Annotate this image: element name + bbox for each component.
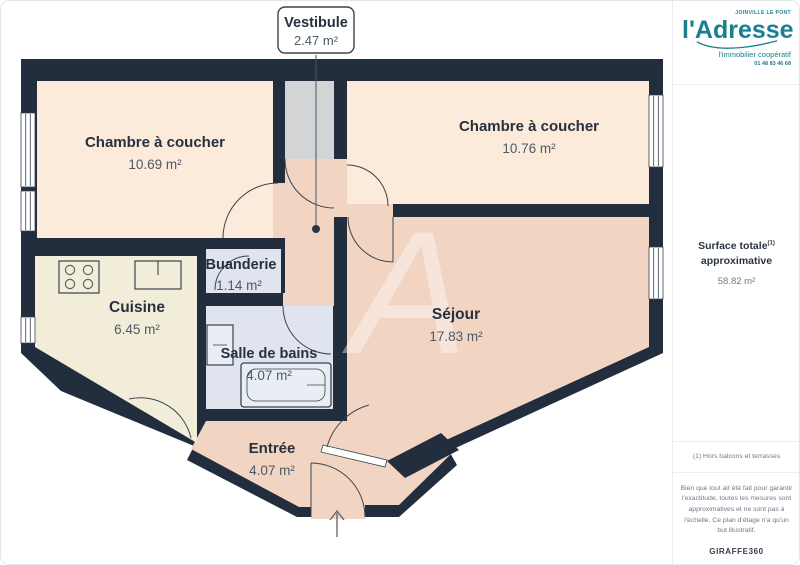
floorplan-svg: A — [1, 1, 672, 565]
room-vestibule-hall-lower — [285, 217, 334, 306]
brand-watermark: A — [342, 196, 468, 391]
area-chambre-left: 10.69 m² — [128, 157, 182, 172]
window-icon — [21, 113, 35, 187]
surface-title-line1: Surface totale — [698, 240, 767, 252]
footnote: (1) Hors balcons et terrasses — [673, 441, 800, 472]
callout-title: Vestibule — [284, 15, 348, 31]
disclaimer-line: approximatives et ne sont pas à — [680, 505, 793, 516]
info-sidebar: JOINVILLE LE PONT l'Adresse l'immobilier… — [672, 1, 800, 565]
entrance-opening — [311, 499, 365, 519]
room-chambre-right — [347, 81, 649, 204]
label-chambre-left: Chambre à coucher — [85, 134, 225, 151]
surface-value: 58.82 m² — [718, 276, 756, 287]
callout-dot — [312, 225, 320, 233]
door-gap-bedroom-right — [334, 166, 347, 204]
label-sejour: Séjour — [432, 306, 480, 323]
agency-tagline: l'immobilier coopératif — [682, 50, 791, 59]
area-entree: 4.07 m² — [249, 463, 295, 478]
disclaimer-line: but illustratif. — [680, 526, 793, 537]
brand-block: JOINVILLE LE PONT l'Adresse l'immobilier… — [673, 1, 800, 85]
callout-area: 2.47 m² — [294, 33, 339, 48]
floorplan-canvas: A — [1, 1, 672, 565]
floorplan-page: A — [0, 0, 800, 565]
area-chambre-right: 10.76 m² — [502, 141, 556, 156]
label-cuisine: Cuisine — [109, 299, 165, 316]
stove-icon — [59, 261, 99, 293]
door-gap-bathroom — [283, 293, 333, 306]
disclaimer-line: Bien que tout ait été fait pour garantir — [680, 484, 793, 495]
window-icon — [21, 317, 35, 343]
giraffe360-credit: GIRAFFE360 — [680, 546, 793, 558]
agency-logo: l'Adresse — [682, 17, 791, 43]
area-buanderie: 1.14 m² — [216, 278, 262, 293]
surface-title: Surface totale(1) approximative — [698, 239, 775, 269]
area-cuisine: 6.45 m² — [114, 322, 160, 337]
disclaimer-block: Bien que tout ait été fait pour garantir… — [673, 472, 800, 565]
area-salle-de-bains: 4.07 m² — [246, 368, 292, 383]
window-icon — [649, 247, 663, 299]
surface-title-line2: approximative — [701, 255, 772, 267]
disclaimer-line: l'exactitude, toutes les mesures sont — [680, 494, 793, 505]
window-icon — [21, 191, 35, 231]
label-buanderie: Buanderie — [206, 257, 277, 273]
label-chambre-right: Chambre à coucher — [459, 118, 599, 135]
surface-block: Surface totale(1) approximative 58.82 m² — [673, 85, 800, 441]
area-sejour: 17.83 m² — [429, 329, 483, 344]
window-icon — [649, 95, 663, 167]
label-salle-de-bains: Salle de bains — [221, 346, 318, 362]
disclaimer-line: l'échelle. Ce plan d'étage n'a qu'un — [680, 516, 793, 527]
surface-footnote-marker: (1) — [768, 240, 775, 246]
agency-phone: 01 48 83 46 68 — [682, 61, 791, 67]
closet — [285, 81, 334, 159]
label-entree: Entrée — [249, 440, 296, 457]
door-gap-bedroom-left — [273, 183, 285, 238]
